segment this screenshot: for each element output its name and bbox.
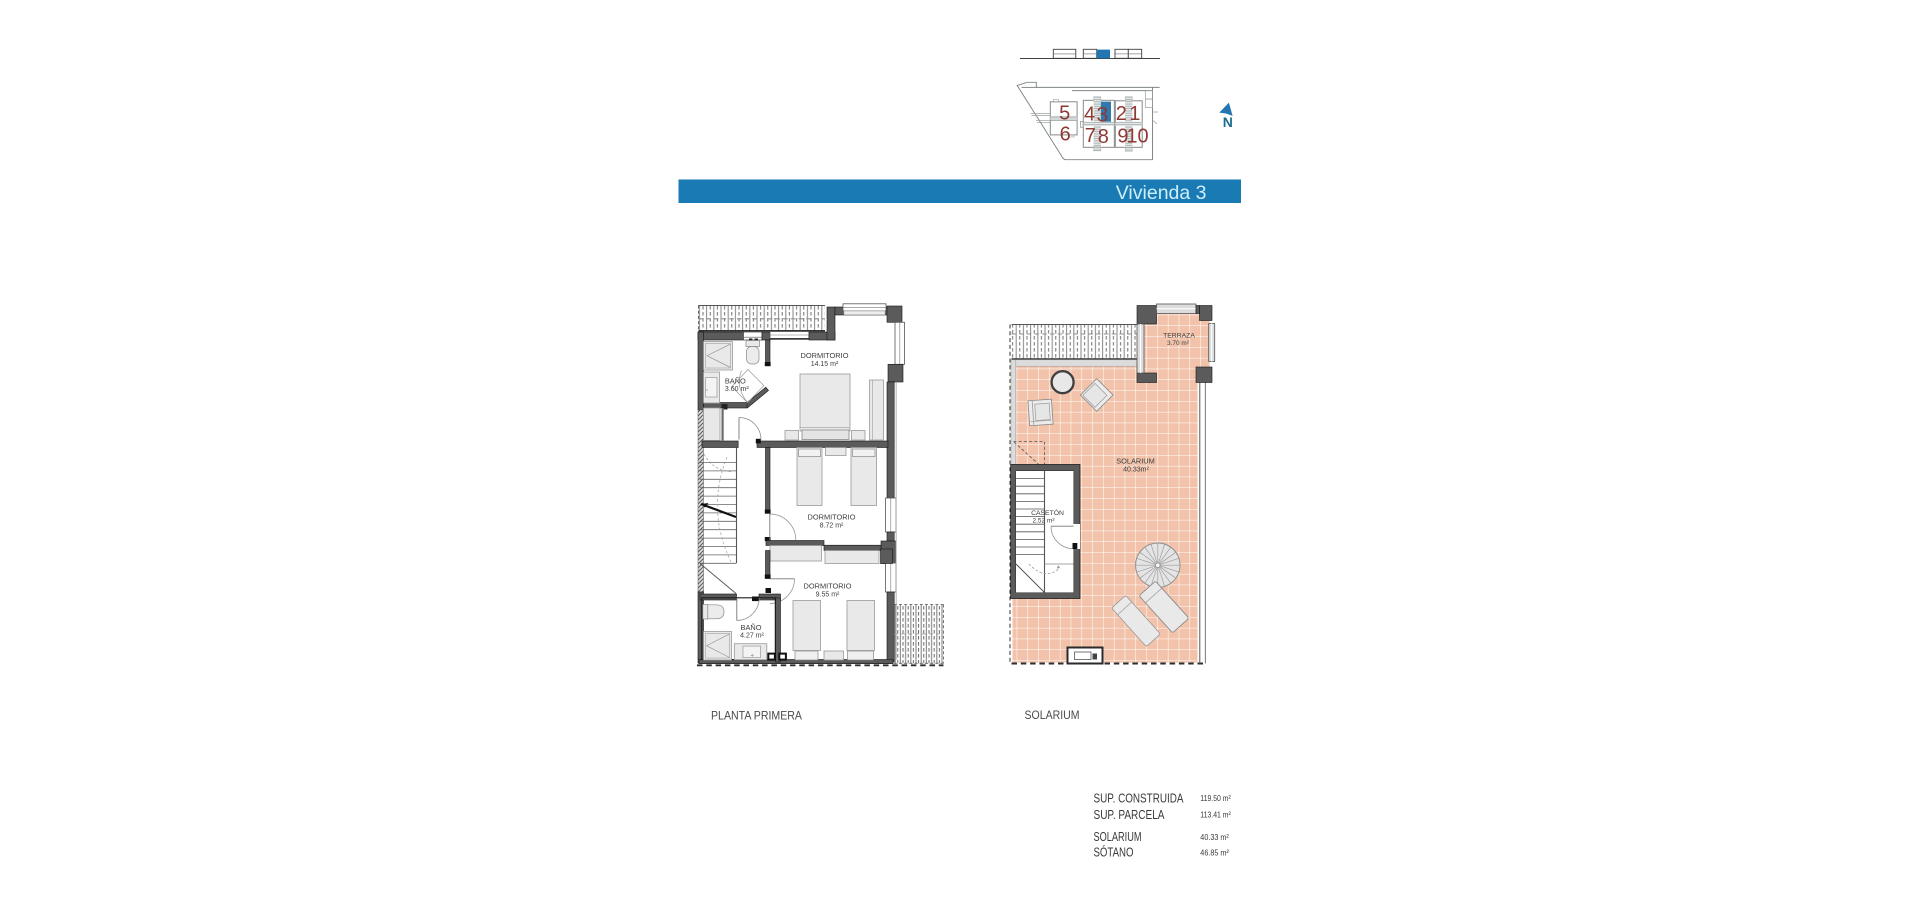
- svg-text:PLANTA PRIMERA: PLANTA PRIMERA: [711, 709, 802, 722]
- svg-text:4.27 m²: 4.27 m²: [740, 632, 764, 639]
- svg-text:9.55 m²: 9.55 m²: [816, 592, 840, 599]
- svg-text:DORMITORIO: DORMITORIO: [808, 513, 856, 522]
- svg-text:DORMITORIO: DORMITORIO: [801, 351, 849, 360]
- svg-text:SUP. CONSTRUIDA: SUP. CONSTRUIDA: [1094, 791, 1184, 806]
- svg-text:6: 6: [1060, 124, 1071, 146]
- svg-text:3: 3: [1096, 103, 1108, 127]
- svg-text:CASETÓN: CASETÓN: [1031, 508, 1064, 517]
- svg-text:SÓTANO: SÓTANO: [1094, 845, 1134, 860]
- svg-text:4: 4: [1084, 104, 1095, 126]
- svg-text:BAÑO: BAÑO: [725, 377, 746, 386]
- svg-text:2: 2: [1116, 103, 1127, 125]
- svg-text:7: 7: [1085, 125, 1096, 147]
- svg-text:40.33m²: 40.33m²: [1123, 467, 1149, 474]
- svg-text:8.72 m²: 8.72 m²: [820, 523, 844, 530]
- svg-text:10: 10: [1126, 126, 1148, 148]
- svg-text:3.60 m²: 3.60 m²: [725, 386, 749, 393]
- svg-text:N: N: [1223, 114, 1233, 130]
- svg-text:DORMITORIO: DORMITORIO: [804, 582, 852, 591]
- svg-text:3.70 m²: 3.70 m²: [1167, 340, 1190, 347]
- svg-text:Vivienda 3: Vivienda 3: [1116, 182, 1207, 204]
- svg-text:TERRAZA: TERRAZA: [1163, 333, 1195, 340]
- svg-text:SOLARIUM: SOLARIUM: [1094, 829, 1142, 844]
- svg-text:5: 5: [1059, 102, 1070, 124]
- svg-text:SOLARIUM: SOLARIUM: [1116, 457, 1155, 466]
- svg-text:8: 8: [1098, 126, 1109, 148]
- svg-text:46.85 m²: 46.85 m²: [1200, 847, 1229, 857]
- svg-text:113.41 m²: 113.41 m²: [1200, 810, 1231, 820]
- svg-text:14.15 m²: 14.15 m²: [811, 361, 839, 368]
- svg-text:40.33 m²: 40.33 m²: [1200, 832, 1229, 842]
- svg-text:119.50 m²: 119.50 m²: [1200, 793, 1231, 803]
- svg-text:SUP. PARCELA: SUP. PARCELA: [1094, 807, 1165, 822]
- svg-text:SOLARIUM: SOLARIUM: [1025, 709, 1080, 722]
- svg-text:1: 1: [1129, 103, 1140, 125]
- svg-text:2.52 m²: 2.52 m²: [1032, 518, 1055, 525]
- svg-text:BAÑO: BAÑO: [741, 623, 762, 632]
